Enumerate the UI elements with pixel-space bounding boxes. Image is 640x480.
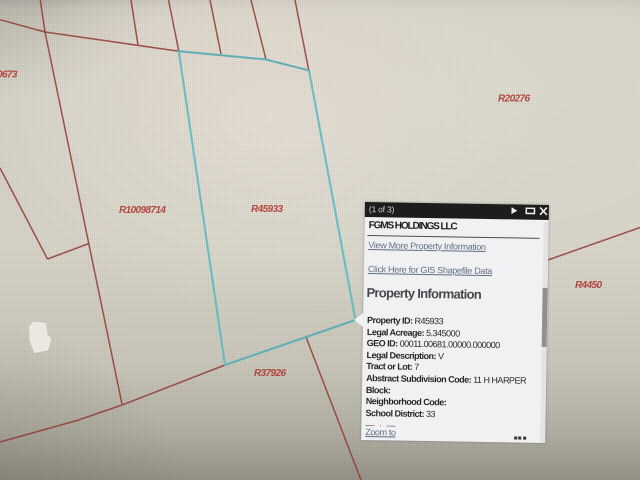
svg-text:0673: 0673 <box>0 70 18 81</box>
svg-text:R10098714: R10098714 <box>119 205 166 216</box>
svg-text:R45933: R45933 <box>251 204 283 215</box>
svg-text:R20276: R20276 <box>498 93 530 104</box>
svg-text:R37926: R37926 <box>254 368 286 379</box>
svg-text:R4450: R4450 <box>575 280 603 291</box>
